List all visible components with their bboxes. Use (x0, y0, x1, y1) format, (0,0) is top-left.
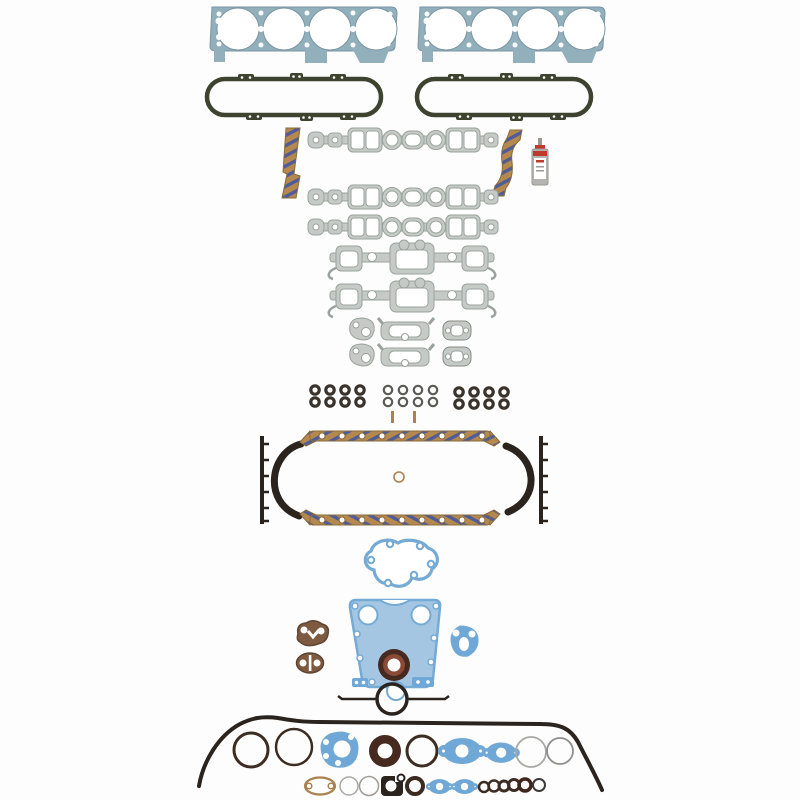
dowel-pin-2 (413, 411, 416, 423)
aux-shaft-seal (369, 735, 401, 767)
fuel-pump-gasket-upper (297, 621, 328, 646)
bypass-gasket (451, 626, 478, 656)
dowel-pin-1 (391, 411, 394, 423)
fuel-pump-gasket-lower (297, 653, 324, 673)
product-photo (0, 0, 800, 800)
front-crank-seal (378, 649, 410, 681)
rear-seal-side-tab-right (412, 677, 434, 687)
carb-base-gasket (321, 732, 358, 767)
cam-plug-gasket (381, 775, 405, 797)
rear-seal-side-tab-left (352, 678, 368, 687)
gasket-set-image (0, 0, 800, 800)
